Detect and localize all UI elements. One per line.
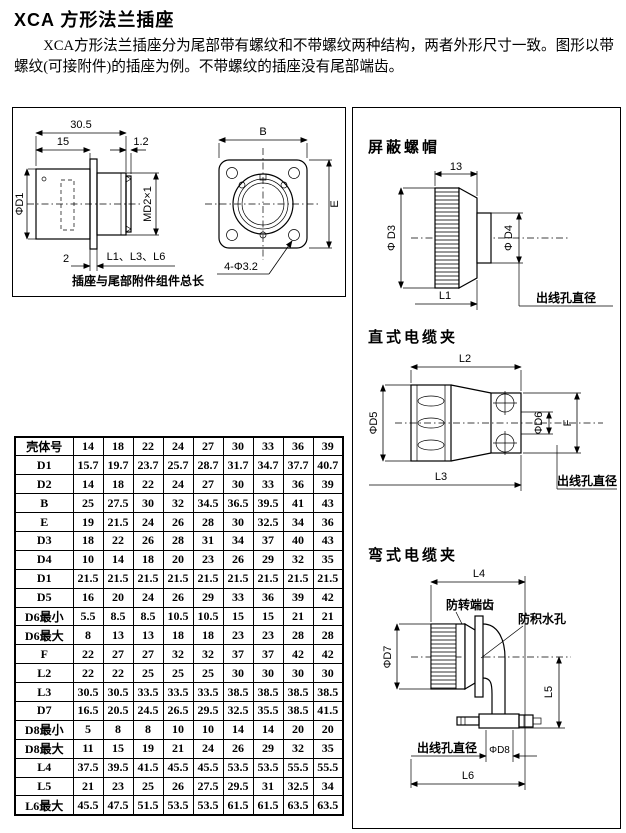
cell: 21.5 [163, 569, 193, 588]
table-row: L2222225252530303030 [15, 664, 343, 683]
dim-15: 15 [57, 136, 69, 148]
outlet-diameter-label-2: 出线孔直径 [557, 473, 617, 488]
cell: 29 [193, 588, 223, 607]
col-header: 18 [103, 437, 133, 456]
dim-l3: L3 [435, 471, 447, 483]
cell: 45.5 [73, 796, 103, 815]
cell: 31 [253, 777, 283, 796]
cell: 34 [283, 513, 313, 532]
row-label: D1 [15, 569, 73, 588]
accessories-panel: 屏蔽螺帽 13 Φ D3 [352, 107, 621, 829]
cell: 53.5 [253, 758, 283, 777]
cell: 45.5 [193, 758, 223, 777]
cell: 42 [313, 588, 343, 607]
cell: 32 [283, 739, 313, 758]
dim-md2x1: MD2×1 [142, 186, 154, 222]
row-label: D6最小 [15, 607, 73, 626]
cell: 36 [313, 513, 343, 532]
dim-phi-d8: ΦD8 [489, 745, 510, 756]
row-label: E [15, 513, 73, 532]
row-label: L3 [15, 683, 73, 702]
cell: 53.5 [193, 796, 223, 815]
cell: 18 [133, 550, 163, 569]
cell: 14 [223, 720, 253, 739]
bent-clamp-body [411, 616, 571, 728]
shield-nut-dimensions: 13 Φ D3 Φ D4 出线孔直径 L1 [386, 161, 613, 310]
cell: 26 [163, 513, 193, 532]
cell: 33 [223, 588, 253, 607]
table-row: L6最大45.547.551.553.553.561.561.563.563.5 [15, 796, 343, 815]
cell: 34.7 [253, 456, 283, 475]
row-label: D4 [15, 550, 73, 569]
cell: 21.5 [253, 569, 283, 588]
cell: 43 [313, 494, 343, 513]
table-row: D6最大81313181823232828 [15, 626, 343, 645]
cell: 30 [283, 664, 313, 683]
cell: 10 [163, 720, 193, 739]
cell: 27 [133, 645, 163, 664]
cell: 25 [163, 664, 193, 683]
dim-phi-d7: ΦD7 [382, 646, 394, 669]
socket-front-dimensions: B E 4-Φ3.2 [217, 126, 341, 274]
cell: 21.5 [313, 569, 343, 588]
cell: 35 [313, 550, 343, 569]
row-label: D1 [15, 456, 73, 475]
cell: 19.7 [103, 456, 133, 475]
dim-phi-d4: Φ D4 [503, 225, 515, 251]
cell: 29 [253, 739, 283, 758]
cell: 21.5 [133, 569, 163, 588]
cell: 23 [193, 550, 223, 569]
straight-clamp-heading: 直式电缆夹 [368, 326, 458, 347]
cell: 30 [253, 664, 283, 683]
cell: 33.5 [163, 683, 193, 702]
cell: 37 [253, 531, 283, 550]
cell: 32 [163, 645, 193, 664]
cell: 40 [283, 531, 313, 550]
cell: 26 [163, 777, 193, 796]
cell: 55.5 [283, 758, 313, 777]
row-label: B [15, 494, 73, 513]
cell: 35 [313, 739, 343, 758]
dim-13: 13 [450, 161, 462, 173]
cell: 8.5 [103, 607, 133, 626]
table-row: L330.530.533.533.533.538.538.538.538.5 [15, 683, 343, 702]
cell: 13 [133, 626, 163, 645]
bent-clamp-heading: 弯式电缆夹 [368, 544, 458, 565]
cell: 38.5 [253, 683, 283, 702]
table-row: D4101418202326293235 [15, 550, 343, 569]
cell: 43 [313, 531, 343, 550]
shield-nut-drawing: 13 Φ D3 Φ D4 出线孔直径 L1 [353, 158, 619, 323]
cell: 21.5 [73, 569, 103, 588]
dim-phi-d3: Φ D3 [386, 225, 398, 251]
cell: 35.5 [253, 701, 283, 720]
anti-rotation-teeth-label: 防转端齿 [446, 597, 494, 612]
table-row: D115.719.723.725.728.731.734.737.740.7 [15, 456, 343, 475]
cell: 26 [163, 588, 193, 607]
col-header: 33 [253, 437, 283, 456]
cell: 25 [133, 664, 163, 683]
dim-l5: L5 [543, 686, 555, 698]
row-label: L5 [15, 777, 73, 796]
row-label: D8最大 [15, 739, 73, 758]
cell: 53.5 [223, 758, 253, 777]
cell: 23 [103, 777, 133, 796]
cell: 61.5 [253, 796, 283, 815]
cell: 26 [223, 739, 253, 758]
row-label: F [15, 645, 73, 664]
cell: 29 [253, 550, 283, 569]
dim-l2: L2 [459, 353, 471, 365]
cell: 22 [103, 531, 133, 550]
cell: 39.5 [103, 758, 133, 777]
cell: 36 [283, 475, 313, 494]
cell: 15 [253, 607, 283, 626]
cell: 21.5 [283, 569, 313, 588]
cell: 26.5 [163, 701, 193, 720]
cell: 23 [253, 626, 283, 645]
cell: 25 [193, 664, 223, 683]
table-row: D3182226283134374043 [15, 531, 343, 550]
cell: 38.5 [283, 683, 313, 702]
cell: 10.5 [163, 607, 193, 626]
cell: 10 [73, 550, 103, 569]
row-label: D8最小 [15, 720, 73, 739]
bent-clamp-drawing: L4 防转端齿 防积水孔 ΦD7 L5 出线孔直径 ΦD8 L6 [353, 566, 619, 806]
cell: 31 [193, 531, 223, 550]
spec-table: 壳体号141822242730333639 D115.719.723.725.7… [14, 436, 344, 816]
cell: 39 [313, 475, 343, 494]
cell: 39.5 [253, 494, 283, 513]
col-header: 39 [313, 437, 343, 456]
cell: 5.5 [73, 607, 103, 626]
dim-l4: L4 [473, 568, 485, 580]
socket-front-view [205, 148, 321, 260]
cell: 32 [283, 550, 313, 569]
cell: 24 [193, 739, 223, 758]
cell: 8 [73, 626, 103, 645]
outlet-diameter-label-1: 出线孔直径 [536, 290, 596, 305]
table-row: E1921.52426283032.53436 [15, 513, 343, 532]
shield-nut-body [411, 188, 568, 288]
cell: 20 [313, 720, 343, 739]
cell: 20.5 [103, 701, 133, 720]
cell: 16 [73, 588, 103, 607]
cell: 29.5 [193, 701, 223, 720]
cell: 28 [283, 626, 313, 645]
cell: 21 [73, 777, 103, 796]
table-row: D5162024262933363942 [15, 588, 343, 607]
cell: 39 [283, 588, 313, 607]
cell: 8 [133, 720, 163, 739]
col-header: 24 [163, 437, 193, 456]
dim-b: B [259, 126, 266, 138]
cell: 21 [313, 607, 343, 626]
col-header: 14 [73, 437, 103, 456]
cell: 22 [103, 664, 133, 683]
dim-30-5: 30.5 [70, 119, 91, 131]
table-row: B2527.5303234.536.539.54143 [15, 494, 343, 513]
col-header: 36 [283, 437, 313, 456]
cell: 22 [133, 475, 163, 494]
table-row: D8最小588101014142020 [15, 720, 343, 739]
outlet-diameter-label-3: 出线孔直径 [417, 740, 477, 755]
cell: 34 [313, 777, 343, 796]
cell: 41.5 [133, 758, 163, 777]
cell: 30 [313, 664, 343, 683]
cell: 55.5 [313, 758, 343, 777]
cell: 36 [253, 588, 283, 607]
cell: 32.5 [223, 701, 253, 720]
cell: 24 [133, 513, 163, 532]
cell: 30.5 [103, 683, 133, 702]
dim-e: E [329, 200, 341, 207]
drain-hole-label: 防积水孔 [518, 611, 566, 626]
dim-1-2: 1.2 [133, 136, 148, 148]
cell: 25.7 [163, 456, 193, 475]
cell: 10.5 [193, 607, 223, 626]
cell: 51.5 [133, 796, 163, 815]
cell: 37.7 [283, 456, 313, 475]
table-row: L52123252627.529.53132.534 [15, 777, 343, 796]
cell: 24 [133, 588, 163, 607]
dim-phi-d5: ΦD5 [368, 412, 380, 435]
cell: 41.5 [313, 701, 343, 720]
cell: 27 [193, 475, 223, 494]
row-label: D6最大 [15, 626, 73, 645]
cell: 23.7 [133, 456, 163, 475]
cell: 14 [73, 475, 103, 494]
row-label: D7 [15, 701, 73, 720]
intro-paragraph: XCA方形法兰插座分为尾部带有螺纹和不带螺纹两种结构，两者外形尺寸一致。图形以带… [14, 36, 615, 78]
cell: 19 [73, 513, 103, 532]
row-label: L4 [15, 758, 73, 777]
socket-side-view [27, 159, 143, 249]
cell: 26 [133, 531, 163, 550]
cell: 11 [73, 739, 103, 758]
cell: 33 [253, 475, 283, 494]
cell: 18 [103, 475, 133, 494]
table-row: D121.521.521.521.521.521.521.521.521.5 [15, 569, 343, 588]
cell: 42 [283, 645, 313, 664]
cell: 29.5 [223, 777, 253, 796]
cell: 27.5 [193, 777, 223, 796]
cell: 38.5 [313, 683, 343, 702]
cell: 30 [223, 475, 253, 494]
cell: 21.5 [223, 569, 253, 588]
cell: 40.7 [313, 456, 343, 475]
cell: 26 [223, 550, 253, 569]
dim-phi-d1: ΦD1 [14, 193, 26, 216]
dim-l1-l3-l6: L1、L3、L6 [107, 251, 166, 263]
dim-4-phi-3-2: 4-Φ3.2 [224, 261, 258, 273]
cell: 63.5 [313, 796, 343, 815]
cell: 32 [193, 645, 223, 664]
socket-dimension-drawing: 30.5 15 1.2 ΦD1 MD2×1 2 L1、L3、L6 插座与尾部附件… [13, 108, 344, 295]
cell: 14 [103, 550, 133, 569]
cell: 47.5 [103, 796, 133, 815]
cell: 33.5 [133, 683, 163, 702]
cell: 24 [163, 475, 193, 494]
row-label: D3 [15, 531, 73, 550]
col-header: 22 [133, 437, 163, 456]
cell: 27.5 [103, 494, 133, 513]
table-header-row: 壳体号141822242730333639 [15, 437, 343, 456]
cell: 16.5 [73, 701, 103, 720]
cell: 45.5 [163, 758, 193, 777]
dim-2: 2 [63, 253, 69, 265]
cell: 33.5 [193, 683, 223, 702]
cell: 28.7 [193, 456, 223, 475]
page-title: XCA 方形法兰插座 [14, 6, 174, 32]
cell: 8.5 [133, 607, 163, 626]
cell: 21.5 [103, 513, 133, 532]
cell: 27 [103, 645, 133, 664]
cell: 13 [103, 626, 133, 645]
cell: 20 [163, 550, 193, 569]
cell: 38.5 [283, 701, 313, 720]
cell: 22 [73, 664, 103, 683]
datasheet-page: { "page": { "title": "XCA 方形法兰插座", "para… [0, 0, 626, 833]
table-row: D6最小5.58.58.510.510.515152121 [15, 607, 343, 626]
cell: 21.5 [103, 569, 133, 588]
cell: 18 [73, 531, 103, 550]
cell: 15 [223, 607, 253, 626]
straight-clamp-drawing: L2 ΦD5 ΦD6 F L3 出线孔直径 [353, 353, 619, 508]
socket-drawing-panel: 30.5 15 1.2 ΦD1 MD2×1 2 L1、L3、L6 插座与尾部附件… [12, 107, 346, 297]
cell: 42 [313, 645, 343, 664]
col-header: 27 [193, 437, 223, 456]
cell: 18 [163, 626, 193, 645]
cell: 34.5 [193, 494, 223, 513]
cell: 32.5 [253, 513, 283, 532]
socket-side-dimensions: 30.5 15 1.2 ΦD1 MD2×1 2 L1、L3、L6 插座与尾部附件… [14, 119, 205, 288]
cell: 25 [133, 777, 163, 796]
shield-nut-heading: 屏蔽螺帽 [368, 136, 440, 157]
cell: 30 [223, 513, 253, 532]
table-row: D2141822242730333639 [15, 475, 343, 494]
row-label: D5 [15, 588, 73, 607]
cell: 53.5 [163, 796, 193, 815]
dim-l6: L6 [462, 770, 474, 782]
cell: 20 [283, 720, 313, 739]
cell: 19 [133, 739, 163, 758]
cell: 8 [103, 720, 133, 739]
table-row: D8最大111519212426293235 [15, 739, 343, 758]
cell: 32.5 [283, 777, 313, 796]
cell: 28 [163, 531, 193, 550]
cell: 37 [223, 645, 253, 664]
dim-l1: L1 [439, 290, 451, 302]
col-header: 壳体号 [15, 437, 73, 456]
table-row: L437.539.541.545.545.553.553.555.555.5 [15, 758, 343, 777]
cell: 21.5 [193, 569, 223, 588]
assembly-length-caption: 插座与尾部附件组件总长 [72, 273, 205, 288]
cell: 20 [103, 588, 133, 607]
cell: 37 [253, 645, 283, 664]
col-header: 30 [223, 437, 253, 456]
cell: 32 [163, 494, 193, 513]
cell: 63.5 [283, 796, 313, 815]
cell: 15 [103, 739, 133, 758]
cell: 14 [253, 720, 283, 739]
cell: 30.5 [73, 683, 103, 702]
cell: 18 [193, 626, 223, 645]
cell: 5 [73, 720, 103, 739]
dim-f: F [562, 419, 574, 426]
cell: 36.5 [223, 494, 253, 513]
cell: 21 [283, 607, 313, 626]
table-row: F222727323237374242 [15, 645, 343, 664]
cell: 61.5 [223, 796, 253, 815]
cell: 34 [223, 531, 253, 550]
table-row: D716.520.524.526.529.532.535.538.541.5 [15, 701, 343, 720]
cell: 38.5 [223, 683, 253, 702]
cell: 25 [73, 494, 103, 513]
cell: 41 [283, 494, 313, 513]
cell: 30 [223, 664, 253, 683]
row-label: D2 [15, 475, 73, 494]
cell: 21 [163, 739, 193, 758]
straight-clamp-dimensions: L2 ΦD5 ΦD6 F L3 出线孔直径 [368, 353, 617, 491]
row-label: L2 [15, 664, 73, 683]
cell: 37.5 [73, 758, 103, 777]
cell: 10 [193, 720, 223, 739]
cell: 23 [223, 626, 253, 645]
cell: 22 [73, 645, 103, 664]
cell: 28 [313, 626, 343, 645]
cell: 28 [193, 513, 223, 532]
row-label: L6最大 [15, 796, 73, 815]
cell: 24.5 [133, 701, 163, 720]
cell: 15.7 [73, 456, 103, 475]
cell: 30 [133, 494, 163, 513]
cell: 31.7 [223, 456, 253, 475]
dim-phi-d6: ΦD6 [533, 412, 545, 435]
